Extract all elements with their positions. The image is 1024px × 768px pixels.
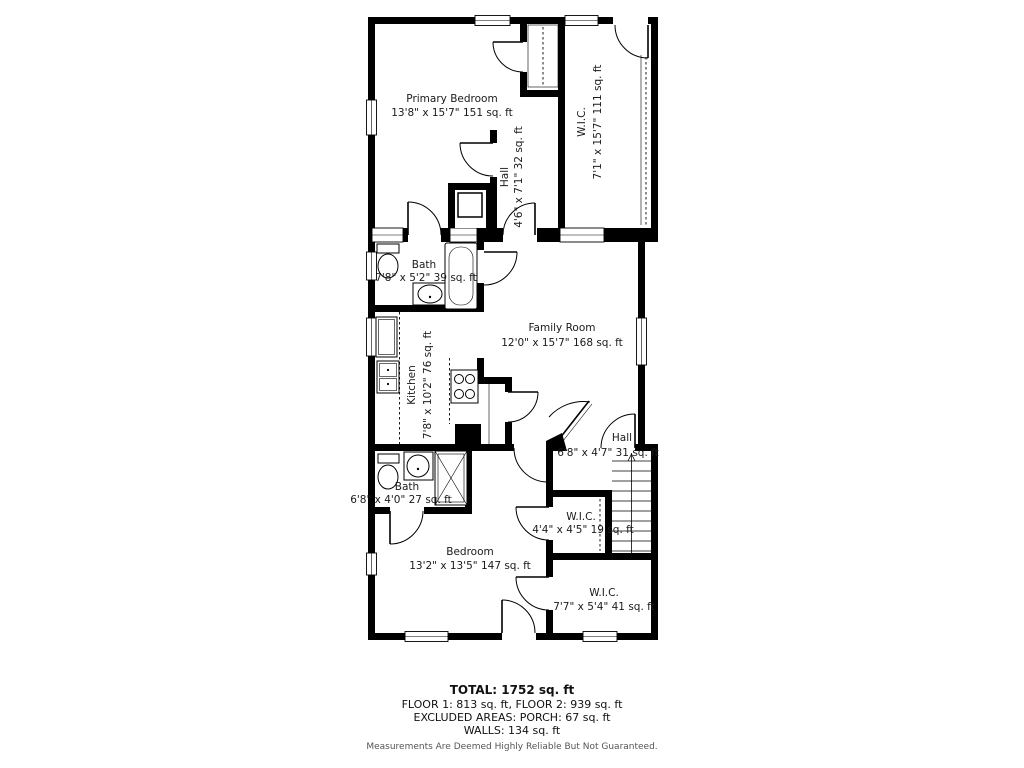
window: [565, 16, 598, 26]
shaft: [455, 190, 486, 228]
wall-segment: [368, 444, 514, 451]
room-label-hall-upper: Hall: [499, 167, 511, 187]
door: [502, 600, 535, 633]
wall-segment: [546, 540, 553, 577]
toilet-tank: [378, 454, 399, 463]
room-dims-wic-upper: 7'1" x 15'7" 111 sq. ft: [592, 65, 604, 180]
room-dims-wic-lower: 7'7" x 5'4" 41 sq. ft: [553, 601, 655, 613]
room-dims-bath-lower: 6'8" x 4'0" 27 sq. ft: [350, 494, 452, 506]
shaft-unit: [458, 193, 482, 217]
fridge: [376, 317, 397, 357]
summary-floors: FLOOR 1: 813 sq. ft, FLOOR 2: 939 sq. ft: [402, 698, 624, 711]
toilet-tank: [377, 244, 399, 253]
room-label-bath-upper: Bath: [412, 259, 436, 271]
floor-plan-page: Primary Bedroom 13'8" x 15'7" 151 sq. ft…: [0, 0, 1024, 768]
wall-segment: [546, 444, 553, 507]
void-block: [455, 424, 481, 451]
summary-disclaimer: Measurements Are Deemed Highly Reliable …: [366, 742, 657, 752]
wall-segment: [546, 490, 612, 497]
room-label-wic-upper: W.I.C.: [576, 107, 588, 137]
summary-walls: WALLS: 134 sq. ft: [464, 724, 561, 737]
sink-faucet: [417, 468, 419, 470]
sink-drain: [387, 383, 389, 385]
room-label-kitchen: Kitchen: [406, 365, 418, 404]
wall-segment: [546, 610, 553, 633]
burner: [455, 375, 464, 384]
room-label-wic-lower: W.I.C.: [589, 587, 619, 599]
wall-segment: [477, 242, 484, 250]
window: [367, 100, 377, 135]
window: [560, 228, 604, 242]
sink-faucet: [429, 296, 431, 298]
window: [450, 228, 477, 242]
wall-segment: [505, 377, 512, 392]
wall-segment: [558, 17, 565, 233]
door: [484, 252, 517, 285]
room-label-hall-lower: Hall: [612, 432, 632, 444]
burner: [455, 390, 464, 399]
burner: [466, 375, 475, 384]
door: [508, 392, 538, 422]
room-dims-hall-lower: 6'8" x 4'7" 31 sq. ft: [557, 447, 659, 459]
room-dims-family-room: 12'0" x 15'7" 168 sq. ft: [501, 337, 623, 349]
sink-basin: [407, 455, 429, 477]
door-diagonal: [549, 401, 592, 441]
summary-block: TOTAL: 1752 sq. ft FLOOR 1: 813 sq. ft, …: [366, 683, 657, 752]
door: [460, 143, 493, 176]
door: [516, 577, 549, 610]
staircase: [612, 453, 651, 556]
door: [408, 202, 441, 235]
sink-basin: [418, 285, 442, 303]
room-label-bath-lower: Bath: [395, 481, 419, 493]
window: [405, 632, 448, 642]
window: [367, 553, 377, 575]
window: [367, 318, 377, 356]
floor-plan-drawing: Primary Bedroom 13'8" x 15'7" 151 sq. ft…: [0, 0, 1024, 768]
wall-segment: [546, 553, 658, 560]
wall-segment: [477, 283, 484, 305]
room-dims-kitchen: 7'8" x 10'2" 76 sq. ft: [422, 331, 434, 439]
summary-excluded: EXCLUDED AREAS: PORCH: 67 sq. ft: [414, 711, 612, 724]
window: [475, 16, 510, 26]
door: [493, 42, 523, 72]
room-label-primary-bedroom: Primary Bedroom: [406, 93, 497, 105]
window: [583, 632, 617, 642]
wall-segment: [490, 130, 497, 143]
door: [514, 448, 548, 482]
door: [615, 25, 648, 58]
room-dims-wic-small: 4'4" x 4'5" 19 sq. ft: [532, 524, 634, 536]
room-dims-bedroom: 13'2" x 13'5" 147 sq. ft: [409, 560, 531, 572]
wall-segment: [651, 17, 658, 233]
window: [637, 318, 647, 365]
window: [372, 228, 403, 242]
room-dims-primary-bedroom: 13'8" x 15'7" 151 sq. ft: [391, 107, 513, 119]
wall-segment: [424, 507, 472, 514]
wall-segment: [486, 183, 493, 233]
summary-total: TOTAL: 1752 sq. ft: [450, 683, 575, 697]
room-dims-bath-upper: 7'8" x 5'2" 39 sq. ft: [375, 272, 477, 284]
sink-drain: [387, 369, 389, 371]
room-label-bedroom: Bedroom: [446, 546, 494, 558]
room-dims-hall-upper: 4'6" x 7'1" 32 sq. ft: [513, 126, 525, 228]
room-label-family-room: Family Room: [528, 322, 595, 334]
door: [390, 511, 423, 544]
burner: [466, 390, 475, 399]
closet-details: [489, 25, 646, 551]
kitchen-sink: [377, 361, 399, 393]
wall-segment: [448, 183, 455, 233]
stove: [451, 370, 478, 403]
wall-segment: [520, 17, 527, 42]
room-label-wic-small: W.I.C.: [566, 511, 596, 523]
wall-segment: [505, 422, 512, 451]
